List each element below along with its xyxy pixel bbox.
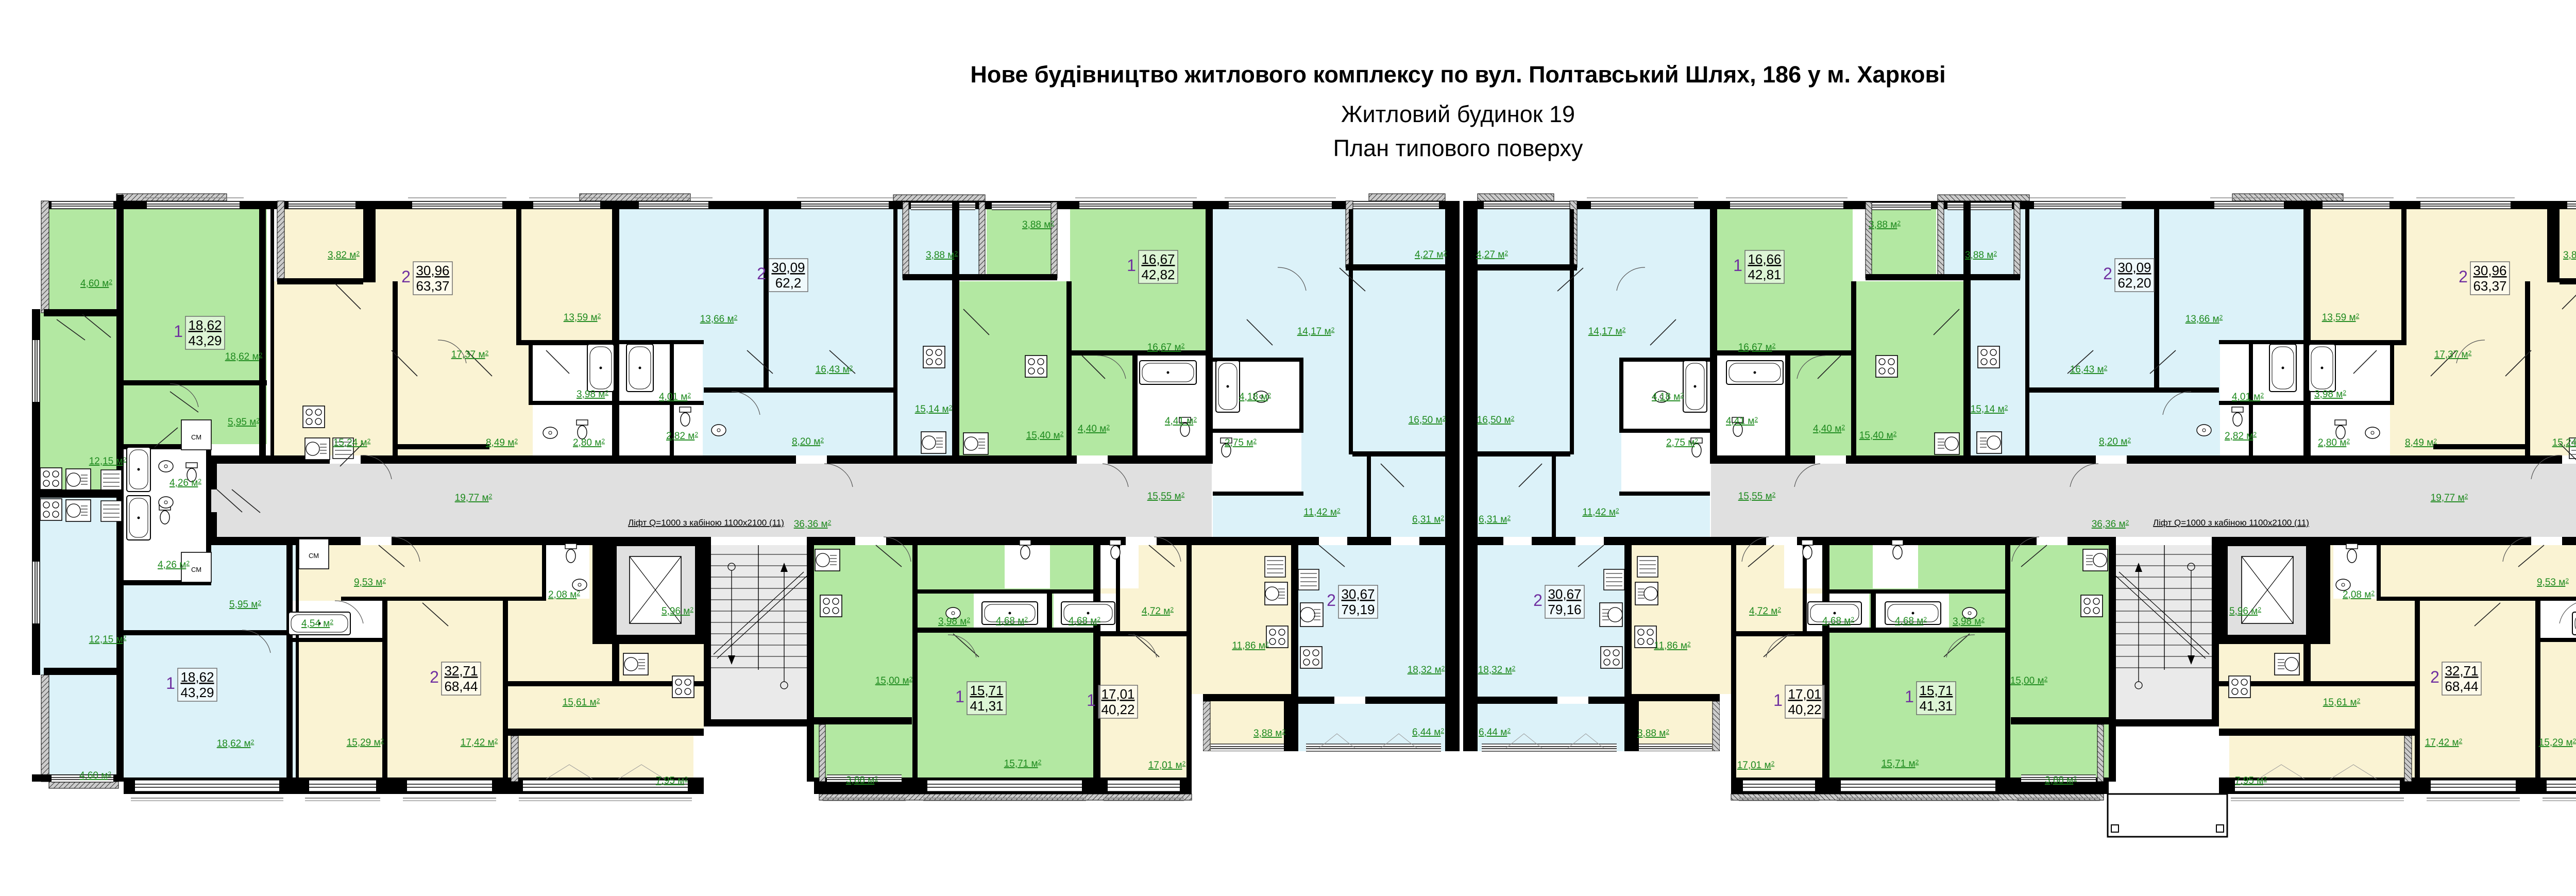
svg-text:4,26 м2: 4,26 м2 <box>170 478 201 488</box>
svg-text:15,61 м2: 15,61 м2 <box>2323 697 2361 708</box>
svg-text:6,44 м2: 6,44 м2 <box>1412 727 1444 738</box>
svg-text:4,40 м2: 4,40 м2 <box>1813 424 1845 434</box>
svg-text:2: 2 <box>401 267 411 286</box>
svg-text:6,31 м2: 6,31 м2 <box>1479 514 1511 525</box>
svg-text:13,66 м2: 13,66 м2 <box>700 314 738 325</box>
svg-text:8,20 м2: 8,20 м2 <box>792 436 824 447</box>
svg-text:62,2: 62,2 <box>775 275 802 291</box>
svg-text:5,96 м2: 5,96 м2 <box>662 606 693 617</box>
svg-text:15,71 м2: 15,71 м2 <box>1882 758 1919 769</box>
svg-text:Ліфт Q=1000 з кабіною 1100х210: Ліфт Q=1000 з кабіною 1100х2100 (11) <box>628 518 784 528</box>
svg-text:17,01: 17,01 <box>1788 686 1821 702</box>
svg-text:17,01 м2: 17,01 м2 <box>1148 760 1186 771</box>
svg-text:8,49 м2: 8,49 м2 <box>2405 437 2437 448</box>
svg-text:63,37: 63,37 <box>416 278 449 294</box>
svg-text:1: 1 <box>955 687 964 706</box>
svg-text:3,88 м2: 3,88 м2 <box>926 250 958 261</box>
svg-text:2,80 м2: 2,80 м2 <box>573 437 605 448</box>
svg-text:СМ: СМ <box>191 433 201 441</box>
svg-text:12,15 м2: 12,15 м2 <box>89 634 127 645</box>
svg-text:41,31: 41,31 <box>970 698 1003 714</box>
svg-text:2: 2 <box>2459 267 2468 286</box>
svg-text:36,36 м2: 36,36 м2 <box>794 519 832 530</box>
svg-text:СМ: СМ <box>309 552 319 560</box>
svg-text:1: 1 <box>1773 691 1783 709</box>
svg-text:2: 2 <box>2103 264 2112 283</box>
svg-text:СМ: СМ <box>191 566 201 573</box>
svg-text:36,36 м2: 36,36 м2 <box>2092 519 2129 530</box>
svg-text:4,18 м2: 4,18 м2 <box>1239 392 1271 402</box>
svg-text:3,88 м2: 3,88 м2 <box>1869 219 1901 230</box>
svg-text:2: 2 <box>2430 668 2439 686</box>
svg-text:16,66: 16,66 <box>1748 251 1781 267</box>
svg-text:2: 2 <box>1327 591 1336 610</box>
svg-text:17,42 м2: 17,42 м2 <box>461 737 498 748</box>
svg-text:15,00 м2: 15,00 м2 <box>875 675 913 686</box>
svg-text:1: 1 <box>1127 256 1136 275</box>
svg-text:2,75 м2: 2,75 м2 <box>1225 437 1257 448</box>
svg-text:8,49 м2: 8,49 м2 <box>486 437 518 448</box>
svg-text:1: 1 <box>1733 256 1742 275</box>
svg-text:18,32 м2: 18,32 м2 <box>1478 665 1516 675</box>
svg-text:3,82 м2: 3,82 м2 <box>328 250 360 261</box>
svg-text:4,60 м2: 4,60 м2 <box>80 278 112 289</box>
svg-text:17,37 м2: 17,37 м2 <box>2434 349 2472 360</box>
svg-text:30,67: 30,67 <box>1548 586 1581 602</box>
svg-text:5,95 м2: 5,95 м2 <box>228 417 260 428</box>
svg-text:41,31: 41,31 <box>1919 698 1953 714</box>
svg-text:18,62: 18,62 <box>188 317 222 333</box>
svg-text:11,42 м2: 11,42 м2 <box>1582 507 1619 518</box>
svg-text:15,40 м2: 15,40 м2 <box>1859 430 1897 441</box>
svg-text:4,68 м2: 4,68 м2 <box>996 616 1028 627</box>
svg-text:42,81: 42,81 <box>1748 267 1781 282</box>
svg-text:3,98 м2: 3,98 м2 <box>938 616 970 627</box>
svg-text:15,14 м2: 15,14 м2 <box>1971 404 2008 415</box>
svg-text:14,17 м2: 14,17 м2 <box>1297 326 1335 337</box>
svg-text:17,42 м2: 17,42 м2 <box>2425 737 2463 748</box>
svg-text:79,16: 79,16 <box>1548 602 1581 617</box>
svg-text:4,54 м2: 4,54 м2 <box>301 618 333 629</box>
svg-text:16,43 м2: 16,43 м2 <box>2070 364 2108 375</box>
svg-text:2,75 м2: 2,75 м2 <box>1666 437 1698 448</box>
svg-text:16,50 м2: 16,50 м2 <box>1409 415 1446 426</box>
svg-text:63,37: 63,37 <box>2473 278 2506 294</box>
svg-text:43,29: 43,29 <box>188 333 222 348</box>
svg-text:42,82: 42,82 <box>1141 267 1175 282</box>
svg-text:2: 2 <box>1533 591 1543 610</box>
svg-text:30,96: 30,96 <box>2473 263 2506 278</box>
svg-text:32,71: 32,71 <box>2445 663 2478 679</box>
svg-text:15,29 м2: 15,29 м2 <box>2539 737 2576 748</box>
svg-text:68,44: 68,44 <box>444 679 478 694</box>
svg-text:Житловий будинок 19: Житловий будинок 19 <box>1341 101 1575 127</box>
svg-text:15,71: 15,71 <box>970 683 1003 698</box>
svg-text:4,40 м2: 4,40 м2 <box>1078 424 1110 434</box>
svg-text:15,14 м2: 15,14 м2 <box>915 404 953 415</box>
svg-text:4,72 м2: 4,72 м2 <box>1749 606 1781 617</box>
svg-text:14,17 м2: 14,17 м2 <box>1588 326 1626 337</box>
svg-text:68,44: 68,44 <box>2445 679 2478 694</box>
svg-text:17,01: 17,01 <box>1101 686 1134 702</box>
svg-text:62,20: 62,20 <box>2117 275 2151 291</box>
svg-text:3,82 м2: 3,82 м2 <box>2563 250 2576 261</box>
svg-text:4,60 м2: 4,60 м2 <box>79 770 111 781</box>
svg-text:79,19: 79,19 <box>1341 602 1375 617</box>
svg-text:2: 2 <box>430 668 439 686</box>
svg-text:4,01 м2: 4,01 м2 <box>2232 392 2264 402</box>
svg-text:5,95 м2: 5,95 м2 <box>229 599 261 610</box>
svg-text:3,88 м2: 3,88 м2 <box>1253 728 1285 739</box>
svg-text:15,40 м2: 15,40 м2 <box>1026 430 1064 441</box>
svg-text:2,82 м2: 2,82 м2 <box>666 431 698 442</box>
svg-text:16,67 м2: 16,67 м2 <box>1147 342 1185 353</box>
svg-text:16,67 м2: 16,67 м2 <box>1738 342 1776 353</box>
svg-text:6,44 м2: 6,44 м2 <box>1479 727 1511 738</box>
svg-text:30,67: 30,67 <box>1341 586 1375 602</box>
svg-text:19,77 м2: 19,77 м2 <box>2431 493 2468 503</box>
svg-text:13,66 м2: 13,66 м2 <box>2185 314 2223 325</box>
svg-text:15,24 м2: 15,24 м2 <box>333 437 371 448</box>
svg-text:15,71: 15,71 <box>1919 683 1953 698</box>
svg-text:32,71: 32,71 <box>444 663 478 679</box>
svg-text:18,62 м2: 18,62 м2 <box>217 738 255 749</box>
svg-text:4,26 м2: 4,26 м2 <box>158 560 190 570</box>
svg-text:4,72 м2: 4,72 м2 <box>1142 606 1174 617</box>
svg-text:9,53 м2: 9,53 м2 <box>354 577 386 588</box>
svg-text:30,96: 30,96 <box>416 263 449 278</box>
svg-text:15,24 м2: 15,24 м2 <box>2552 437 2576 448</box>
svg-text:7,95 м2: 7,95 м2 <box>656 775 688 786</box>
svg-text:2,08 м2: 2,08 м2 <box>2343 589 2375 600</box>
svg-text:30,09: 30,09 <box>2117 260 2151 275</box>
svg-text:1: 1 <box>174 322 183 341</box>
svg-text:2: 2 <box>757 264 766 283</box>
svg-text:3,88 м2: 3,88 м2 <box>2045 775 2077 786</box>
svg-text:3,88 м2: 3,88 м2 <box>1965 250 1997 261</box>
svg-text:17,37 м2: 17,37 м2 <box>451 349 489 360</box>
svg-text:43,29: 43,29 <box>180 685 214 700</box>
svg-text:15,71 м2: 15,71 м2 <box>1004 758 1042 769</box>
svg-text:30,09: 30,09 <box>771 260 805 275</box>
svg-text:13,59 м2: 13,59 м2 <box>2322 312 2360 323</box>
svg-text:4,27 м2: 4,27 м2 <box>1415 249 1447 260</box>
svg-text:2,80 м2: 2,80 м2 <box>2318 437 2350 448</box>
svg-text:17,01 м2: 17,01 м2 <box>1737 760 1775 771</box>
svg-text:12,15 м2: 12,15 м2 <box>89 456 127 467</box>
svg-text:4,68 м2: 4,68 м2 <box>1069 616 1100 627</box>
svg-text:9,53 м2: 9,53 м2 <box>2537 577 2569 588</box>
svg-text:Нове будівництво житлового ком: Нове будівництво житлового комплексу по … <box>970 61 1945 88</box>
svg-text:4,27 м2: 4,27 м2 <box>1476 249 1508 260</box>
svg-text:16,43 м2: 16,43 м2 <box>816 364 853 375</box>
svg-text:1: 1 <box>166 674 175 692</box>
svg-text:11,86 м2: 11,86 м2 <box>1232 640 1268 651</box>
svg-text:18,32 м2: 18,32 м2 <box>1408 665 1445 675</box>
svg-text:2,82 м2: 2,82 м2 <box>2225 431 2257 442</box>
svg-text:4,18 м2: 4,18 м2 <box>1652 392 1684 402</box>
svg-text:18,62 м2: 18,62 м2 <box>225 351 263 362</box>
svg-text:4,68 м2: 4,68 м2 <box>1895 616 1927 627</box>
svg-text:19,77 м2: 19,77 м2 <box>455 493 493 503</box>
svg-text:40,22: 40,22 <box>1788 702 1821 717</box>
svg-text:4,01 м2: 4,01 м2 <box>659 392 691 402</box>
svg-text:8,20 м2: 8,20 м2 <box>2099 436 2131 447</box>
svg-text:11,42 м2: 11,42 м2 <box>1303 507 1340 518</box>
svg-text:6,31 м2: 6,31 м2 <box>1412 514 1444 525</box>
svg-text:11,86 м2: 11,86 м2 <box>1654 640 1690 651</box>
svg-text:13,59 м2: 13,59 м2 <box>564 312 601 323</box>
svg-text:15,29 м2: 15,29 м2 <box>347 737 384 748</box>
svg-text:1: 1 <box>1087 691 1096 709</box>
svg-text:1: 1 <box>1905 687 1914 706</box>
svg-text:3,88 м2: 3,88 м2 <box>1022 219 1054 230</box>
svg-text:Ліфт Q=1000 з кабіною 1100х210: Ліфт Q=1000 з кабіною 1100х2100 (11) <box>2153 518 2309 528</box>
svg-text:16,67: 16,67 <box>1141 251 1175 267</box>
svg-text:4,41 м2: 4,41 м2 <box>1726 416 1758 427</box>
svg-text:3,88 м2: 3,88 м2 <box>846 775 878 786</box>
svg-text:5,96 м2: 5,96 м2 <box>2229 606 2261 617</box>
svg-text:3,98 м2: 3,98 м2 <box>1953 616 1985 627</box>
svg-text:15,00 м2: 15,00 м2 <box>2010 675 2048 686</box>
svg-text:3,88 м2: 3,88 м2 <box>1637 728 1669 739</box>
svg-text:7,95 м2: 7,95 м2 <box>2235 775 2267 786</box>
svg-text:3,98 м2: 3,98 м2 <box>577 389 608 400</box>
svg-text:15,55 м2: 15,55 м2 <box>1147 491 1185 502</box>
svg-text:16,50 м2: 16,50 м2 <box>1477 415 1515 426</box>
svg-text:4,41 м2: 4,41 м2 <box>1165 416 1197 427</box>
svg-text:15,61 м2: 15,61 м2 <box>563 697 600 708</box>
svg-text:План типового поверху: План типового поверху <box>1333 135 1583 161</box>
svg-text:15,55 м2: 15,55 м2 <box>1738 491 1776 502</box>
svg-text:18,62: 18,62 <box>180 669 214 685</box>
svg-text:4,68 м2: 4,68 м2 <box>1822 616 1854 627</box>
svg-text:3,98 м2: 3,98 м2 <box>2314 389 2346 400</box>
svg-text:40,22: 40,22 <box>1101 702 1134 717</box>
svg-text:2,08 м2: 2,08 м2 <box>548 589 580 600</box>
